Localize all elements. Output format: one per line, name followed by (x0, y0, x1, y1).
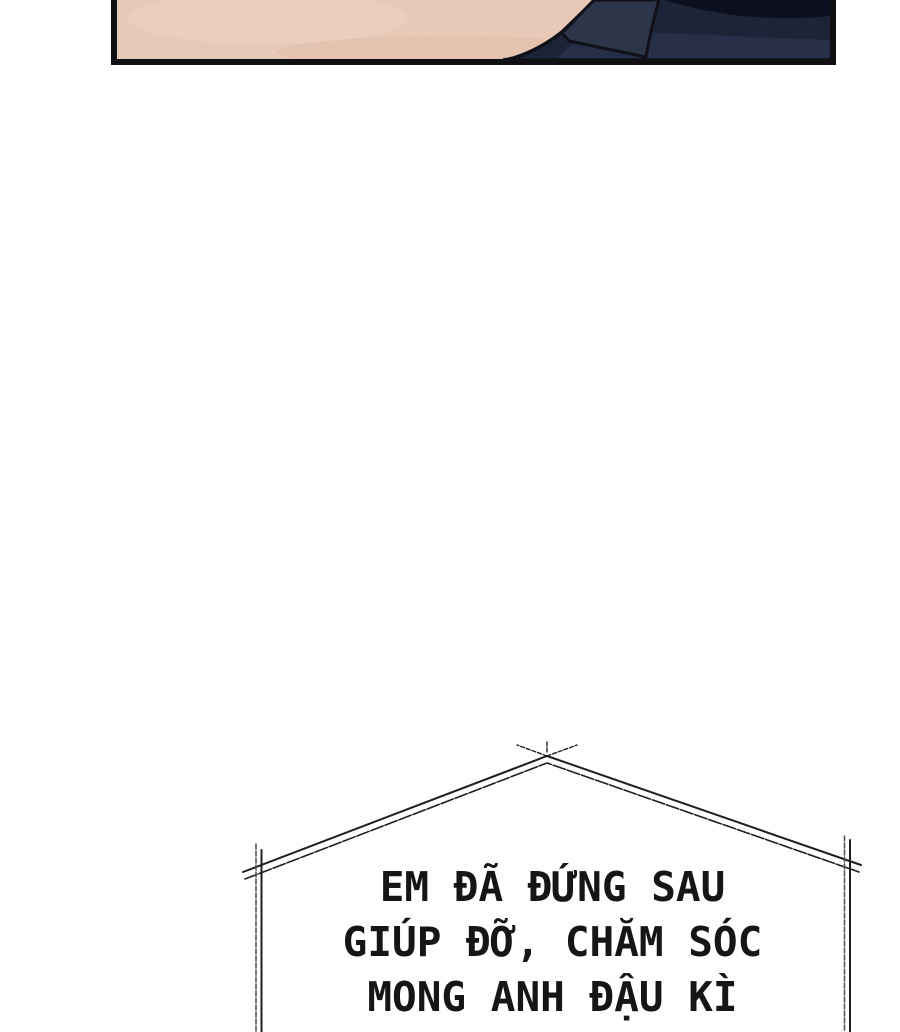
speech-text-line-3: MONG ANH ĐẬU KÌ (258, 970, 847, 1025)
comic-panel (111, 0, 836, 65)
webtoon-page: EM ĐÃ ĐỨNG SAU GIÚP ĐỠ, CHĂM SÓC MONG AN… (0, 0, 900, 1032)
speech-text-line-1: EM ĐÃ ĐỨNG SAU (258, 860, 847, 915)
speech-bubble-text: EM ĐÃ ĐỨNG SAU GIÚP ĐỠ, CHĂM SÓC MONG AN… (258, 860, 847, 1025)
bubble-roof-outer (243, 756, 861, 872)
bubble-apex-sketch-marks (517, 742, 577, 756)
panel-artwork (117, 0, 830, 59)
speech-text-line-2: GIÚP ĐỠ, CHĂM SÓC (258, 915, 847, 970)
